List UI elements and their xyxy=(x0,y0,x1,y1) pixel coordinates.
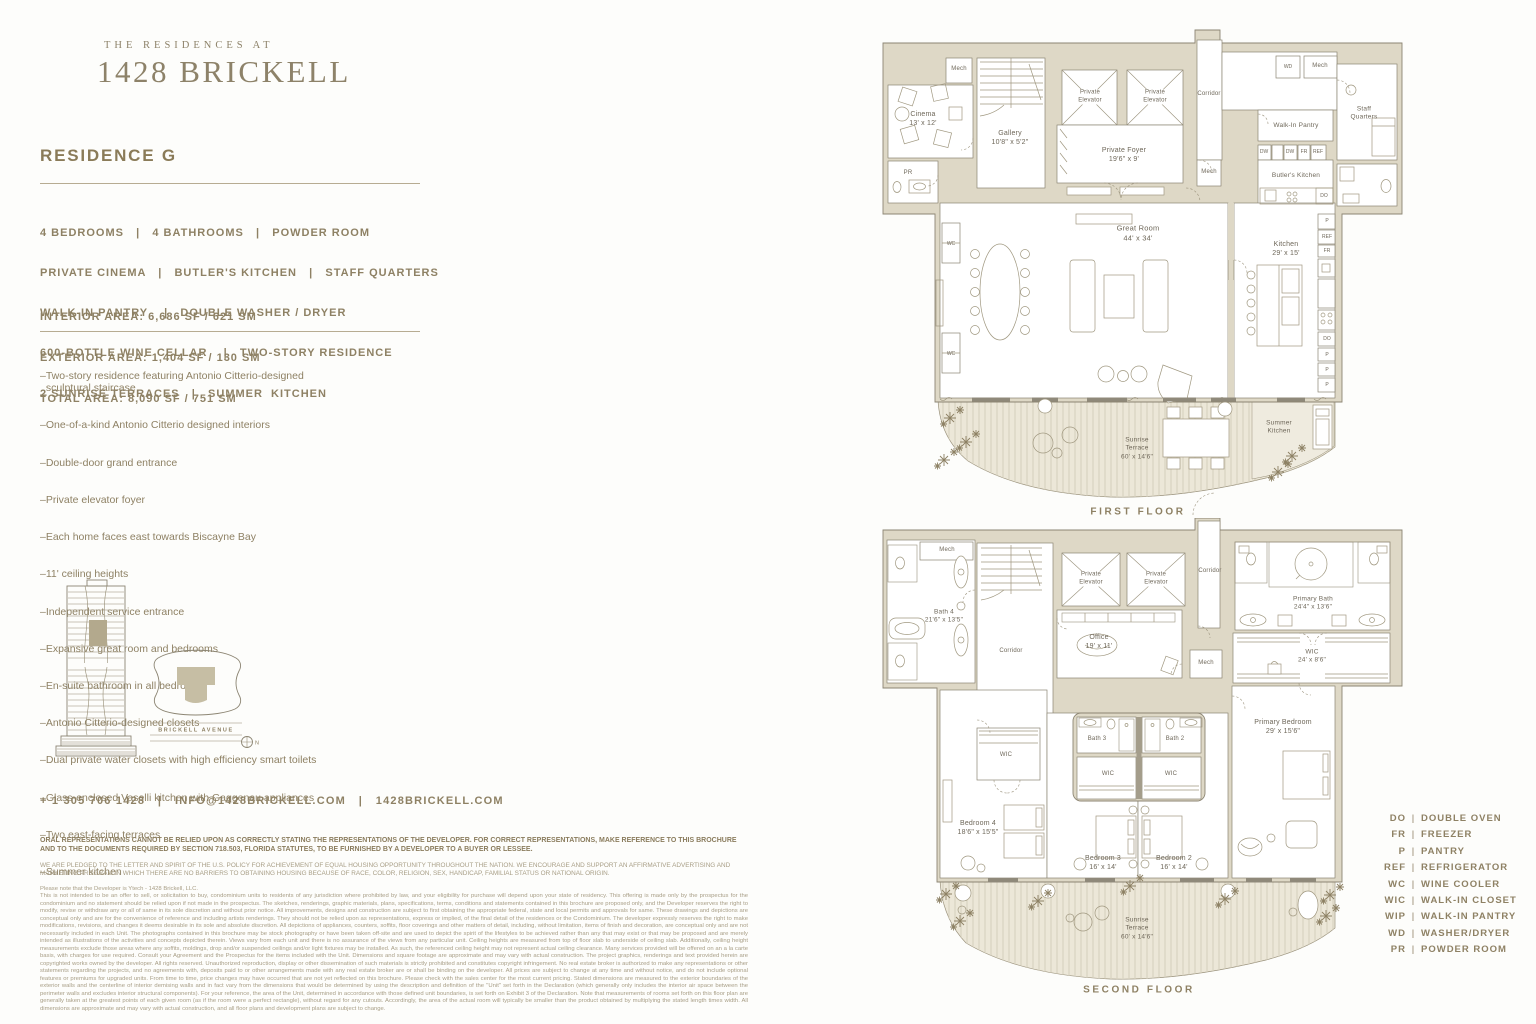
room-label-bedroom2: Bedroom 2 16' x 14' xyxy=(1156,854,1192,872)
appliance-label-fr: FR xyxy=(1301,149,1308,156)
room-label-mech: Mech xyxy=(1198,660,1213,668)
appliance-label-wc: WC xyxy=(947,241,955,248)
room-label-mech: Mech xyxy=(1201,169,1216,177)
room-label-bath3: Bath 3 xyxy=(1088,736,1107,744)
room-label-corridor: Corridor xyxy=(1198,568,1221,576)
legal-equal-housing: WE ARE PLEDGED TO THE LETTER AND SPIRIT … xyxy=(40,862,748,879)
room-label-private-elevator: Private Elevator xyxy=(1142,90,1168,105)
second-floor-plan-drawing xyxy=(880,518,1536,1018)
first-floor-caption: FIRST FLOOR xyxy=(1090,506,1185,519)
room-label-butlers-kitchen: Butler's Kitchen xyxy=(1272,172,1320,180)
appliance-label-p: P xyxy=(1325,352,1328,359)
room-label-mech: Mech xyxy=(939,547,954,555)
room-label-private-elevator: Private Elevator xyxy=(1077,90,1103,105)
room-label-staff-quarters: Staff Quarters xyxy=(1351,106,1378,123)
room-label-primary-bath: Primary Bath 24'4" x 13'6" xyxy=(1293,596,1333,613)
appliance-label-ref: REF xyxy=(1313,149,1323,156)
street-label: BRICKELL AVENUE xyxy=(158,728,234,734)
legal-fine-print: This is not intended to be an offer to s… xyxy=(40,893,748,1013)
room-label-pr: PR xyxy=(904,170,913,178)
appliance-label-fr: FR xyxy=(1324,248,1331,255)
room-label-great-room: Great Room 44' x 34' xyxy=(1117,223,1160,243)
feature-item: –One-of-a-kind Antonio Citterio designed… xyxy=(40,419,316,431)
feature-item: –Each home faces east towards Biscayne B… xyxy=(40,531,316,543)
building-elevation-drawing xyxy=(55,576,139,768)
first-floor-plan-drawing xyxy=(880,28,1536,520)
unit-footprint-highlight xyxy=(177,667,215,703)
room-label-bath4: Bath 4 21'6" x 13'5" xyxy=(925,609,963,626)
appliance-label-p: P xyxy=(1325,382,1328,389)
room-label-office: Office 19' x 11' xyxy=(1086,633,1113,651)
room-label-bedroom3: Bedroom 3 16' x 14' xyxy=(1085,854,1121,872)
room-label-sunrise-terrace: Sunrise Terrace 60' x 14'6" xyxy=(1121,436,1153,461)
first-floor-plan: Cinema 13' x 12' Mech PR Gallery 10'8" x… xyxy=(880,28,1536,520)
feature-item: –Two-story residence featuring Antonio C… xyxy=(40,370,316,395)
feature-item: –Double-door grand entrance xyxy=(40,457,316,469)
unit-level-marker xyxy=(89,620,107,646)
brochure-page: THE RESIDENCES AT 1428 BRICKELL RESIDENC… xyxy=(0,0,1536,1024)
room-label-walk-in-pantry: Walk-In Pantry xyxy=(1273,122,1318,130)
appliance-label-dw: DW xyxy=(1286,149,1294,156)
room-label-corridor: Corridor xyxy=(999,648,1022,656)
room-label-wic-primary: WIC 24' x 8'6" xyxy=(1298,649,1326,666)
divider-rule-bottom xyxy=(40,331,420,332)
brand-eyebrow: THE RESIDENCES AT xyxy=(104,40,274,51)
legal-developer-note: Please note that the Developer is Ytech … xyxy=(40,886,748,894)
brand-title: 1428 BRICKELL xyxy=(97,54,351,90)
appliance-label-p: P xyxy=(1325,367,1328,374)
spec-line: PRIVATE CINEMA | BUTLER'S KITCHEN | STAF… xyxy=(40,267,439,280)
appliance-label-do: DO xyxy=(1323,336,1331,343)
legal-oral-representations: ORAL REPRESENTATIONS CANNOT BE RELIED UP… xyxy=(40,836,748,855)
second-floor-plan: Mech Bath 4 21'6" x 13'5" Corridor Priva… xyxy=(880,518,1536,1018)
area-line: INTERIOR AREA: 6,686 SF / 621 SM xyxy=(40,311,260,325)
compass-icon: N xyxy=(242,737,260,748)
room-label-mech: Mech xyxy=(1312,63,1327,71)
room-label-wd: WD xyxy=(1284,64,1292,71)
spec-line: 4 BEDROOMS | 4 BATHROOMS | POWDER ROOM xyxy=(40,227,439,240)
room-label-summer-kitchen: Summer Kitchen xyxy=(1266,420,1292,437)
room-label-mech: Mech xyxy=(951,66,966,74)
room-label-wic: WIC xyxy=(1102,771,1114,779)
room-label-wic: WIC xyxy=(1165,771,1177,779)
legal-disclaimers: ORAL REPRESENTATIONS CANNOT BE RELIED UP… xyxy=(40,836,748,1013)
room-label-private-foyer: Private Foyer 19'6" x 9' xyxy=(1102,146,1146,164)
appliance-label-dw: DW xyxy=(1260,149,1268,156)
site-keyplan: BRICKELL AVENUE N xyxy=(148,645,266,757)
residence-title: RESIDENCE G xyxy=(40,146,177,166)
contact-line[interactable]: + 1 305 706 1428 | INFO@1428BRICKELL.COM… xyxy=(40,795,504,807)
room-label-kitchen: Kitchen 29' x 15' xyxy=(1272,240,1299,258)
room-label-gallery: Gallery 10'8" x 5'2" xyxy=(992,129,1029,147)
room-label-private-elevator: Private Elevator xyxy=(1143,572,1169,587)
room-label-sunrise-terrace: Sunrise Terrace 60' x 14'6" xyxy=(1121,916,1153,941)
room-label-bedroom4: Bedroom 4 18'6" x 15'5" xyxy=(958,819,999,837)
compass-north-label: N xyxy=(255,741,259,747)
appliance-label-wc: WC xyxy=(947,351,955,358)
room-label-wic: WIC xyxy=(1000,752,1012,760)
appliance-label-ref: REF xyxy=(1322,234,1332,241)
room-label-bath2: Bath 2 xyxy=(1166,736,1185,744)
second-floor-caption: SECOND FLOOR xyxy=(1083,984,1195,997)
appliance-label-p: P xyxy=(1325,218,1328,225)
feature-item: –Private elevator foyer xyxy=(40,494,316,506)
room-label-private-elevator: Private Elevator xyxy=(1078,572,1104,587)
room-label-primary-bedroom: Primary Bedroom 29' x 15'6" xyxy=(1254,718,1311,736)
room-label-cinema: Cinema 13' x 12' xyxy=(909,110,936,128)
appliance-label-do: DO xyxy=(1320,193,1328,200)
divider-rule-top xyxy=(40,183,420,184)
room-label-corridor: Corridor xyxy=(1197,91,1220,99)
